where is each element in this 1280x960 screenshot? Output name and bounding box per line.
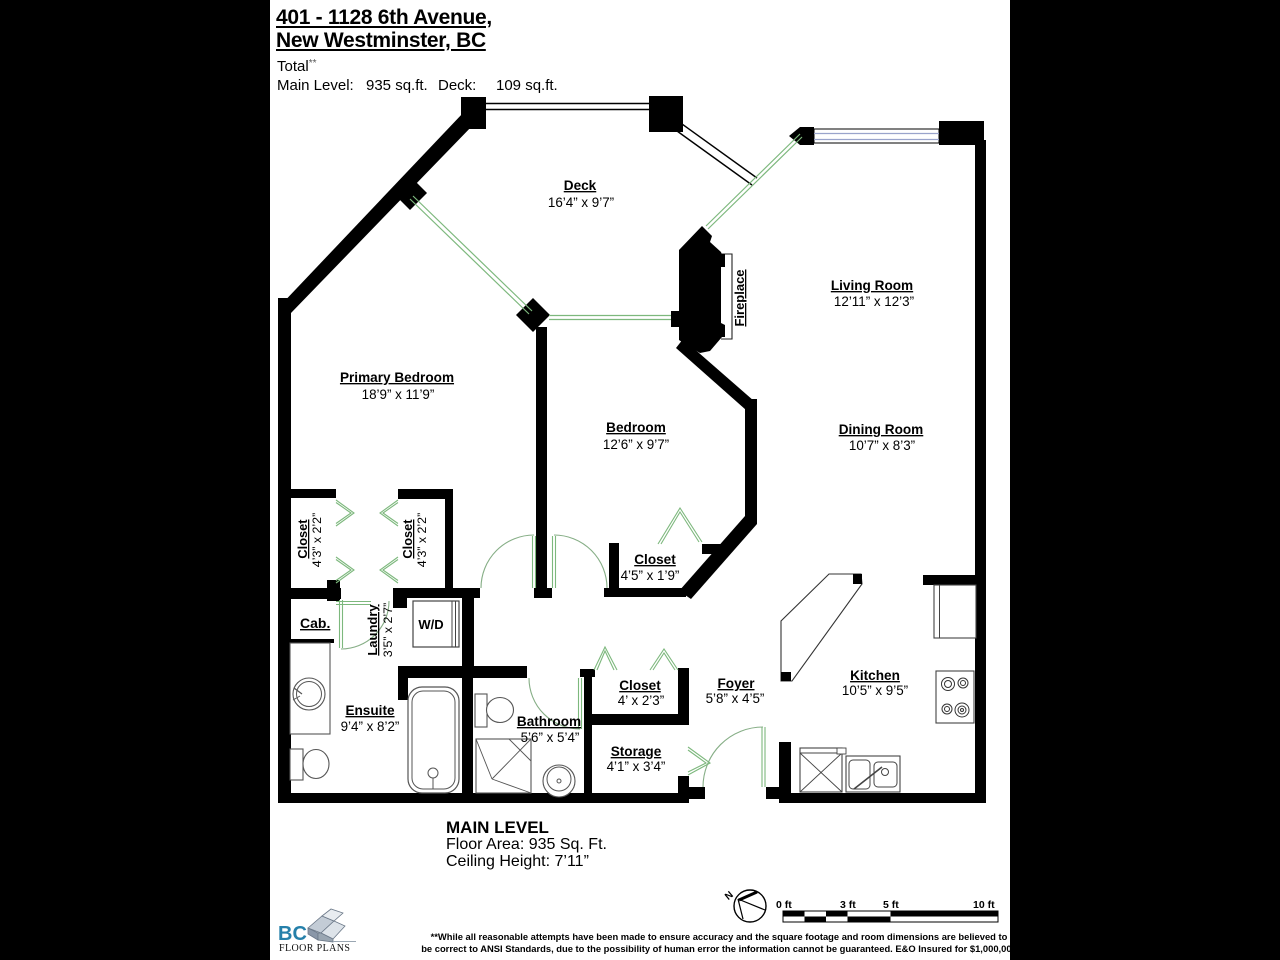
svg-text:Foyer: Foyer: [717, 676, 755, 691]
svg-text:4’5” x 1’9”: 4’5” x 1’9”: [621, 568, 680, 583]
svg-text:4’3” x 2’2”: 4’3” x 2’2”: [415, 513, 429, 567]
svg-text:10’5” x 9’5”: 10’5” x 9’5”: [842, 683, 908, 698]
svg-text:Closet: Closet: [634, 552, 676, 567]
svg-text:Kitchen: Kitchen: [850, 668, 900, 683]
svg-text:Bedroom: Bedroom: [606, 420, 666, 435]
svg-text:12’11” x 12’3”: 12’11” x 12’3”: [834, 294, 914, 309]
svg-text:4’1” x 3’4”: 4’1” x 3’4”: [607, 759, 666, 774]
svg-text:16’4” x 9’7”: 16’4” x 9’7”: [548, 195, 614, 210]
svg-text:5 ft: 5 ft: [883, 899, 899, 911]
svg-text:4’ x 2’3”: 4’ x 2’3”: [618, 693, 664, 708]
svg-text:W/D: W/D: [418, 617, 443, 632]
svg-text:Closet: Closet: [400, 519, 415, 559]
svg-text:Closet: Closet: [295, 519, 310, 559]
svg-text:Closet: Closet: [619, 678, 661, 693]
svg-text:9’4” x 8’2”: 9’4” x 8’2”: [341, 719, 400, 734]
svg-text:N: N: [723, 890, 736, 903]
svg-text:12’6” x 9’7”: 12’6” x 9’7”: [603, 437, 669, 452]
svg-text:Fireplace: Fireplace: [732, 269, 747, 326]
svg-text:Cab.: Cab.: [300, 615, 330, 631]
svg-text:Ensuite: Ensuite: [345, 703, 395, 718]
svg-text:Living Room: Living Room: [831, 278, 913, 293]
svg-text:18’9” x 11’9”: 18’9” x 11’9”: [362, 387, 435, 402]
svg-text:Laundry: Laundry: [365, 604, 380, 656]
svg-text:10 ft: 10 ft: [973, 899, 995, 911]
svg-text:3’5” x 2’7”: 3’5” x 2’7”: [381, 603, 395, 657]
svg-text:5’8” x 4’5”: 5’8” x 4’5”: [706, 691, 765, 706]
svg-text:Bathroom: Bathroom: [517, 714, 581, 729]
svg-text:10’7” x 8’3”: 10’7” x 8’3”: [849, 438, 915, 453]
svg-text:3 ft: 3 ft: [840, 899, 856, 911]
svg-text:4’3” x 2’2”: 4’3” x 2’2”: [310, 513, 324, 567]
svg-text:0 ft: 0 ft: [776, 899, 792, 911]
svg-text:Dining Room: Dining Room: [839, 422, 924, 437]
svg-text:Storage: Storage: [611, 744, 662, 759]
svg-text:Deck: Deck: [564, 178, 597, 193]
svg-text:5’6” x 5’4”: 5’6” x 5’4”: [521, 730, 580, 745]
svg-text:Primary Bedroom: Primary Bedroom: [340, 370, 454, 385]
